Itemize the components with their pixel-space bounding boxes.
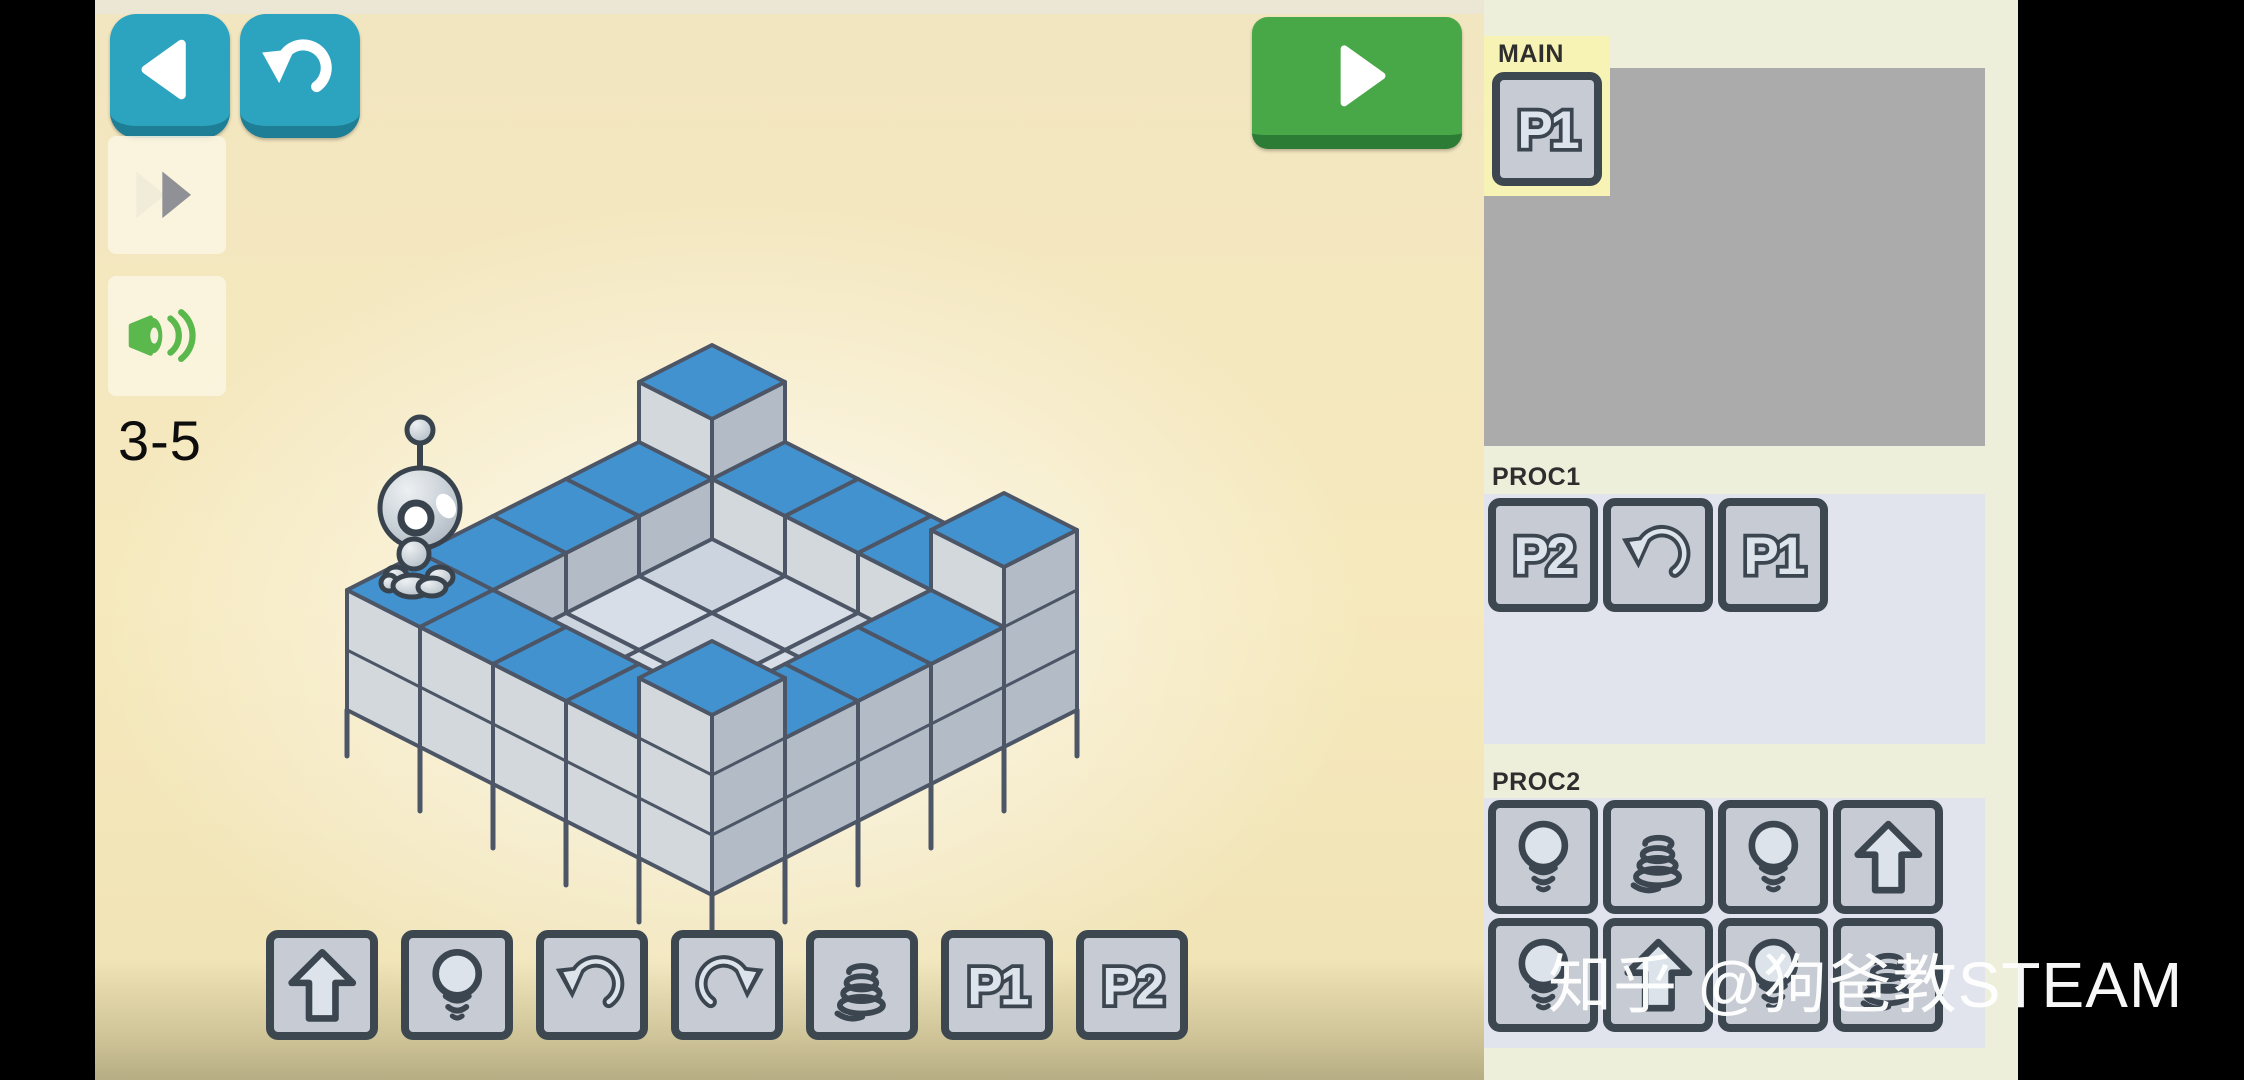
program-slot-proc1-turn-left[interactable] xyxy=(1603,498,1713,612)
command-tile-turn-left[interactable] xyxy=(536,930,648,1040)
undo-arrow-icon xyxy=(254,27,345,112)
program-slot-main-p1[interactable]: P1 xyxy=(1492,72,1602,186)
main-section-label: MAIN xyxy=(1498,40,1564,69)
undo-button[interactable] xyxy=(240,14,360,138)
watermark-text: 知乎 @狗爸教STEAM xyxy=(1548,934,2183,1026)
command-tile-light[interactable] xyxy=(401,930,513,1040)
program-slot-proc2-light[interactable] xyxy=(1488,800,1598,914)
command-tile-walk[interactable] xyxy=(266,930,378,1040)
level-number-label: 3-5 xyxy=(118,408,202,473)
command-palette: P1P2 xyxy=(266,930,1188,1040)
proc1-section-label: PROC1 xyxy=(1492,463,1581,492)
lightbot-game-screen: 3-5 P1P2 MAIN P1 PROC1 P2P1 PROC2 知乎 @狗爸… xyxy=(0,0,2244,1080)
play-button[interactable] xyxy=(1252,17,1462,149)
command-tile-turn-right[interactable] xyxy=(671,930,783,1040)
svg-text:P2: P2 xyxy=(1513,527,1574,586)
sound-on-icon xyxy=(122,290,212,381)
program-panel: MAIN P1 PROC1 P2P1 PROC2 xyxy=(1484,0,2018,1080)
back-arrow-icon xyxy=(124,27,215,112)
command-tile-jump[interactable] xyxy=(806,930,918,1040)
fast-forward-icon xyxy=(122,150,212,240)
proc2-section-label: PROC2 xyxy=(1492,768,1581,797)
command-tile-p1[interactable]: P1 xyxy=(941,930,1053,1040)
svg-text:P1: P1 xyxy=(967,957,1028,1016)
program-slot-proc1-p2[interactable]: P2 xyxy=(1488,498,1598,612)
svg-text:P2: P2 xyxy=(1102,957,1163,1016)
back-button[interactable] xyxy=(110,14,230,138)
program-slot-proc2-light[interactable] xyxy=(1718,800,1828,914)
sound-button[interactable] xyxy=(108,276,226,396)
command-tile-p2[interactable]: P2 xyxy=(1076,930,1188,1040)
svg-text:P1: P1 xyxy=(1743,527,1804,586)
play-icon xyxy=(1277,31,1437,121)
fast-forward-button[interactable] xyxy=(108,136,226,254)
svg-text:P1: P1 xyxy=(1517,101,1578,160)
program-slot-proc1-p1[interactable]: P1 xyxy=(1718,498,1828,612)
program-slot-proc2-jump[interactable] xyxy=(1603,800,1713,914)
program-slot-proc2-walk[interactable] xyxy=(1833,800,1943,914)
